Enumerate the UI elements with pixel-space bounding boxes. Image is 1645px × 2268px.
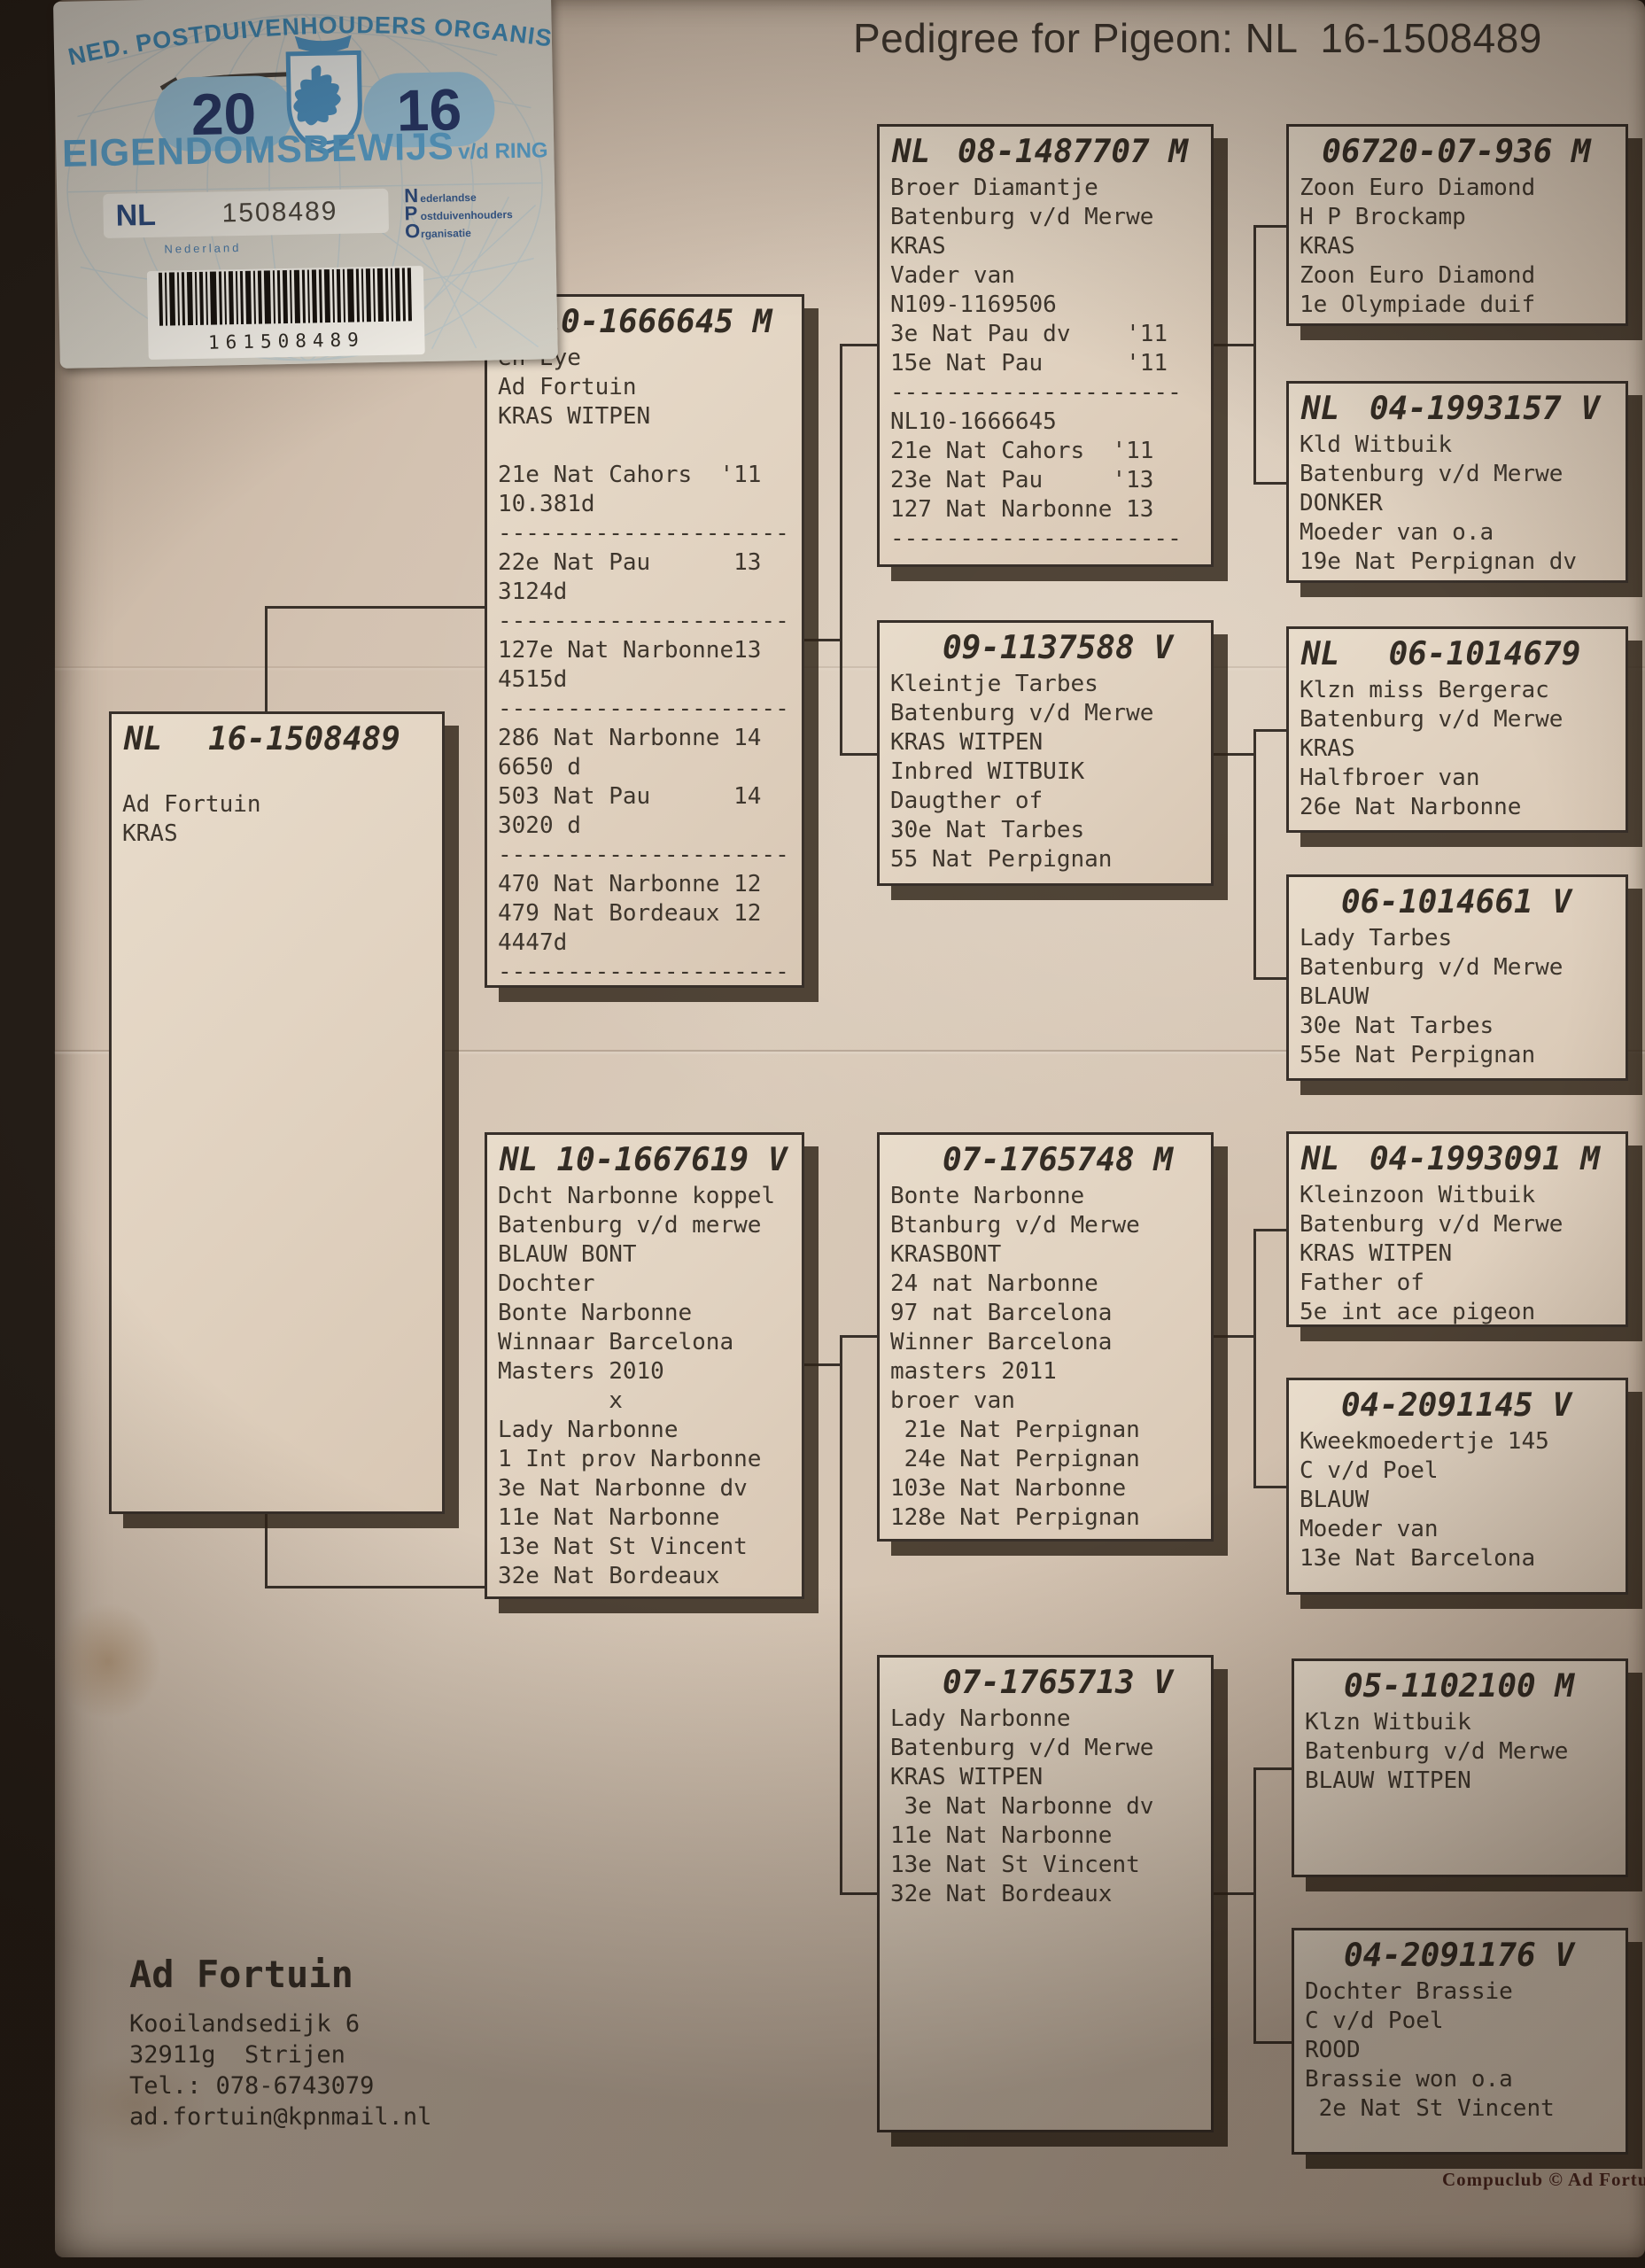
connector-line — [1214, 1335, 1253, 1338]
pedigree-box-greatgrandparent-3: NL06-1014679 Klzn miss Bergerac Batenbur… — [1286, 626, 1628, 833]
ring-number: 04-1993157 V — [1358, 391, 1611, 427]
ring-number: 04-2091176 V — [1307, 1938, 1611, 1974]
pedigree-box-mother: NL10-1667619 V Dcht Narbonne koppel Bate… — [485, 1132, 804, 1599]
connector-line — [1253, 729, 1286, 732]
ring-number: 06-1014679 — [1358, 636, 1611, 672]
connector-line — [840, 1335, 877, 1338]
ring-number: 16-1508489 — [181, 721, 428, 757]
pigeon-details: en Eye Ad Fortuin KRAS WITPEN 21e Nat Ca… — [487, 342, 802, 987]
pedigree-box-greatgrandparent-5: NL04-1993091 M Kleinzoon Witbuik Batenbu… — [1286, 1131, 1628, 1327]
pigeon-details: Kleinzoon Witbuik Batenburg v/d Merwe KR… — [1289, 1179, 1626, 1327]
connector-line — [265, 606, 268, 712]
ring-number: 06-1014661 V — [1301, 884, 1611, 920]
ring-number: 05-1102100 M — [1307, 1668, 1611, 1705]
ring-number: 08-1487707 M — [949, 134, 1197, 170]
ring-country-prefix: NL — [1301, 636, 1358, 672]
breeder-name: Ad Fortuin — [129, 1953, 431, 1996]
paper-stain — [55, 1604, 161, 1719]
connector-line — [1253, 482, 1286, 485]
pedigree-box-greatgrandparent-7: 05-1102100 M Klzn Witbuik Batenburg v/d … — [1292, 1658, 1628, 1877]
connector-line — [804, 1363, 842, 1366]
pigeon-details: Bonte Narbonne Btanburg v/d Merwe KRASBO… — [880, 1180, 1211, 1533]
ring-country-prefix: NL — [892, 134, 949, 170]
ring-number: 10-1666645 M — [526, 304, 788, 340]
connector-line — [840, 753, 877, 756]
ring-country-prefix: NL — [1301, 1141, 1358, 1177]
ring-number: 07-1765748 M — [919, 1142, 1197, 1178]
pigeon-details: Kleintje Tarbes Batenburg v/d Merwe KRAS… — [880, 668, 1211, 874]
connector-line — [265, 1514, 268, 1588]
ring-number: 10-1667619 V — [556, 1142, 788, 1178]
connector-line — [1253, 1229, 1256, 1488]
npo-word: rganisatie — [421, 227, 471, 240]
npo-word: ederlandse — [420, 191, 477, 205]
pigeon-details: Kweekmoedertje 145 C v/d Poel BLAUW Moed… — [1289, 1425, 1626, 1573]
software-credit: Compuclub © Ad Fortu — [1442, 2169, 1645, 2191]
pedigree-box-greatgrandparent-8: 04-2091176 V Dochter Brassie C v/d Poel … — [1292, 1928, 1628, 2155]
nederland-caption: Nederland — [164, 241, 241, 256]
barcode-bars — [157, 266, 415, 328]
pedigree-box-greatgrandparent-6: 04-2091145 V Kweekmoedertje 145 C v/d Po… — [1286, 1378, 1628, 1595]
ring-number: 06720-07-936 M — [1301, 134, 1611, 170]
ring-number: 04-2091145 V — [1301, 1387, 1611, 1424]
ring-country-prefix: NL — [124, 721, 181, 757]
ring-number: 07-1765713 V — [919, 1665, 1197, 1701]
npo-acronym-block: Nederlandse Postduivenhouders Organisati… — [404, 183, 513, 237]
ring-number-sticker: 1508489 — [221, 197, 338, 229]
pedigree-box-grandfather-maternal: 07-1765748 M Bonte Narbonne Btanburg v/d… — [877, 1132, 1214, 1542]
ring-number: 04-1993091 M — [1358, 1141, 1611, 1177]
ownership-text: EIGENDOMSBEWIJS — [62, 125, 455, 175]
pigeon-details: Klzn Witbuik Batenburg v/d Merwe BLAUW W… — [1294, 1706, 1626, 1796]
barcode-number: 161508489 — [148, 328, 424, 354]
connector-line — [840, 344, 842, 756]
page-title: Pedigree for Pigeon: NL 16-1508489 — [853, 14, 1542, 62]
barcode: 161508489 — [147, 266, 425, 360]
country-code: NL — [103, 197, 222, 234]
npo-initial: O — [405, 220, 421, 243]
ring-country-prefix: NL — [500, 1142, 556, 1178]
breeder-address: Kooilandsedijk 6 32911g Strijen Tel.: 07… — [129, 2008, 431, 2132]
connector-line — [1253, 729, 1256, 980]
connector-line — [265, 1586, 485, 1588]
connector-line — [1253, 225, 1256, 485]
connector-line — [265, 606, 485, 609]
connector-line — [840, 1335, 842, 1895]
pedigree-box-greatgrandparent-2: NL04-1993157 V Kld Witbuik Batenburg v/d… — [1286, 381, 1628, 583]
pigeon-details: Lady Tarbes Batenburg v/d Merwe BLAUW 30… — [1289, 922, 1626, 1070]
connector-line — [1253, 1767, 1256, 2044]
connector-line — [1253, 225, 1286, 228]
connector-line — [1214, 344, 1253, 346]
connector-line — [1253, 977, 1286, 980]
npo-ownership-sticker: NED. POSTDUIVENHOUDERS ORGANISATIE 20 16… — [53, 0, 558, 369]
pigeon-details: Lady Narbonne Batenburg v/d Merwe KRAS W… — [880, 1703, 1211, 1909]
connector-line — [840, 1892, 877, 1895]
pigeon-details: Broer Diamantje Batenburg v/d Merwe KRAS… — [880, 172, 1211, 554]
connector-line — [1214, 1892, 1253, 1895]
pedigree-box-father: 10-1666645 M en Eye Ad Fortuin KRAS WITP… — [485, 294, 804, 988]
pedigree-box-subject: NL16-1508489 Ad Fortuin KRAS — [109, 711, 445, 1514]
pedigree-box-greatgrandparent-4: 06-1014661 V Lady Tarbes Batenburg v/d M… — [1286, 874, 1628, 1081]
ring-country-prefix: NL — [1301, 391, 1358, 427]
connector-line — [1214, 753, 1253, 756]
ring-id-field: NL 1508489 — [103, 189, 389, 238]
connector-line — [1253, 1767, 1292, 1770]
connector-line — [1253, 1486, 1286, 1488]
pigeon-details: Klzn miss Bergerac Batenburg v/d Merwe K… — [1289, 674, 1626, 822]
pigeon-details: Dcht Narbonne koppel Batenburg v/d merwe… — [487, 1180, 802, 1591]
pedigree-box-grandmother-paternal: 09-1137588 V Kleintje Tarbes Batenburg v… — [877, 620, 1214, 886]
pigeon-details: Dochter Brassie C v/d Poel ROOD Brassie … — [1294, 1976, 1626, 2124]
pigeon-details: Ad Fortuin KRAS — [112, 759, 442, 849]
photo-of-pedigree-document: Pedigree for Pigeon: NL 16-1508489 NL16-… — [0, 0, 1645, 2268]
ring-number: 09-1137588 V — [919, 630, 1197, 666]
connector-line — [804, 639, 842, 641]
pedigree-box-grandfather-paternal: NL08-1487707 M Broer Diamantje Batenburg… — [877, 124, 1214, 567]
pedigree-box-grandmother-maternal: 07-1765713 V Lady Narbonne Batenburg v/d… — [877, 1655, 1214, 2132]
breeder-contact-block: Ad Fortuin Kooilandsedijk 6 32911g Strij… — [129, 1953, 431, 2132]
connector-line — [1253, 2041, 1292, 2044]
pigeon-details: Zoon Euro Diamond H P Brockamp KRAS Zoon… — [1289, 172, 1626, 320]
pigeon-details: Kld Witbuik Batenburg v/d Merwe DONKER M… — [1289, 429, 1626, 577]
ownership-suffix: v/d RING — [458, 138, 548, 164]
connector-line — [840, 344, 877, 346]
connector-line — [1253, 1229, 1286, 1231]
pedigree-box-greatgrandparent-1: 06720-07-936 M Zoon Euro Diamond H P Bro… — [1286, 124, 1628, 326]
npo-row: Nederlandse — [404, 183, 512, 202]
npo-word: ostduivenhouders — [421, 208, 513, 222]
